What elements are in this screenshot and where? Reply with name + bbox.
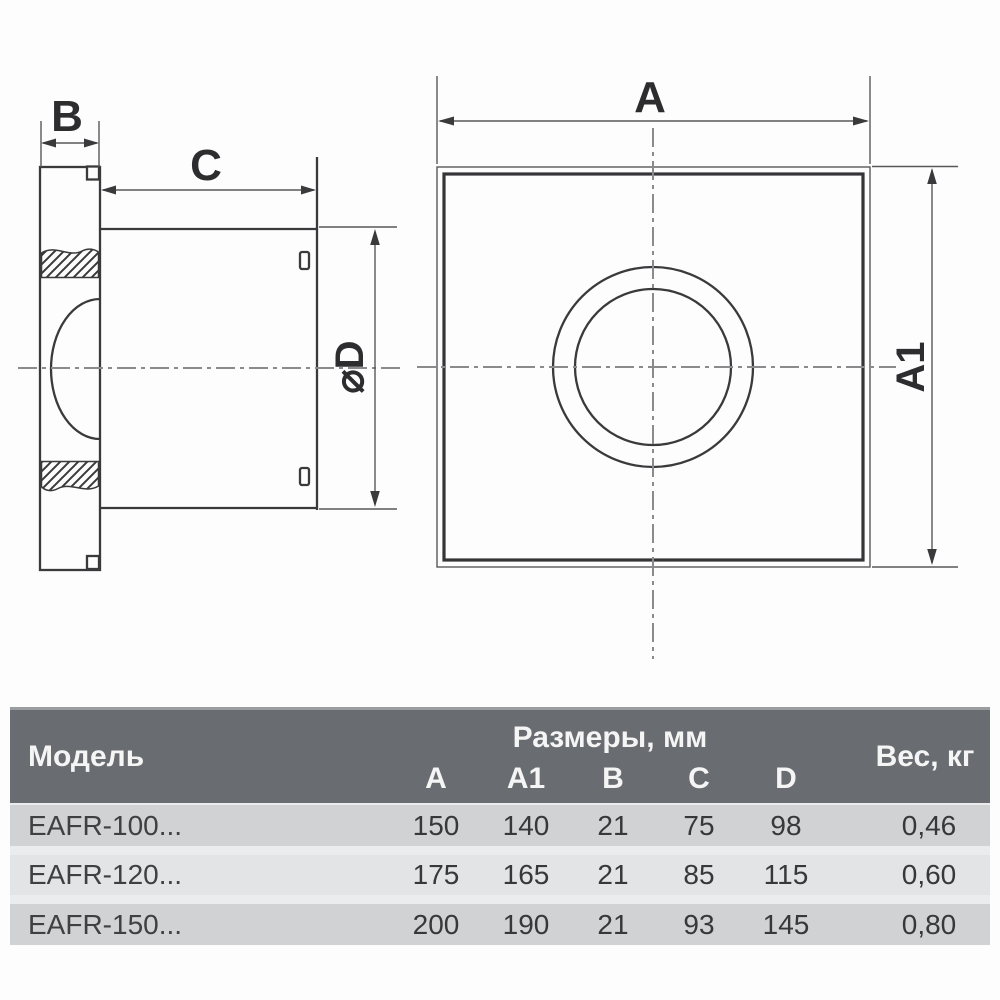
value-b-cell: 21	[570, 859, 656, 891]
dim-a-label: A	[634, 73, 666, 122]
hatch-section-bottom	[42, 462, 99, 491]
page: B C ⌀D	[0, 0, 1000, 1000]
weight-cell: 0,80	[830, 909, 990, 941]
table-row: EAFR-150... 200 190 21 93 145 0,80	[10, 904, 990, 945]
front-view: A A1	[417, 73, 958, 659]
value-b-cell: 21	[570, 909, 656, 941]
weight-cell: 0,46	[830, 810, 990, 842]
dim-d-label: ⌀D	[328, 341, 372, 394]
side-view: B C ⌀D	[18, 92, 400, 570]
model-column-header: Модель	[10, 740, 390, 774]
value-a-cell: 200	[390, 909, 482, 941]
value-a-cell: 175	[390, 859, 482, 891]
col-header-d: D	[742, 760, 830, 796]
model-cell: EAFR-150...	[10, 909, 390, 941]
tube-clip-top	[300, 252, 309, 269]
dim-d-arrow-bottom	[370, 491, 380, 507]
dim-c-label: C	[190, 141, 222, 190]
dim-a1-arrow-top	[927, 168, 937, 184]
dim-b-label: B	[51, 92, 83, 141]
weight-column-header: Вес, кг	[830, 740, 990, 774]
value-c-cell: 85	[656, 859, 742, 891]
value-c-cell: 93	[656, 909, 742, 941]
value-a1-cell: 165	[482, 859, 570, 891]
table-header: Модель Размеры, мм A A1 B C D Вес, кг	[10, 707, 990, 803]
col-header-a: A	[390, 760, 482, 796]
dim-b-arrow-right	[84, 139, 99, 148]
dim-a-arrow-right	[853, 117, 869, 126]
dim-c-arrow-right	[301, 186, 316, 195]
flange-notch-bottom	[87, 556, 99, 569]
tube-clip-bottom	[300, 468, 309, 485]
hatch-section-top	[42, 249, 99, 277]
dim-a-arrow-left	[438, 117, 454, 126]
col-header-c: C	[656, 760, 742, 796]
dim-c-arrow-left	[101, 186, 116, 195]
value-a1-cell: 140	[482, 810, 570, 842]
value-d-cell: 98	[742, 810, 830, 842]
dimensions-group-header: Размеры, мм	[390, 715, 830, 755]
weight-cell: 0,60	[830, 859, 990, 891]
col-header-b: B	[570, 760, 656, 796]
value-d-cell: 145	[742, 909, 830, 941]
value-b-cell: 21	[570, 810, 656, 842]
value-a1-cell: 190	[482, 909, 570, 941]
model-cell: EAFR-120...	[10, 859, 390, 891]
dim-a1-arrow-bottom	[927, 549, 937, 565]
dim-d-arrow-top	[370, 229, 380, 245]
value-c-cell: 75	[656, 810, 742, 842]
value-d-cell: 115	[742, 859, 830, 891]
spec-table: Модель Размеры, мм A A1 B C D Вес, кг EA…	[10, 707, 990, 945]
flange-notch-top	[87, 167, 99, 180]
model-cell: EAFR-100...	[10, 810, 390, 842]
dim-a1-label: A1	[889, 341, 933, 392]
table-row: EAFR-100... 150 140 21 75 98 0,46	[10, 805, 990, 846]
value-a-cell: 150	[390, 810, 482, 842]
col-header-a1: A1	[482, 760, 570, 796]
table-row: EAFR-120... 175 165 21 85 115 0,60	[10, 855, 990, 895]
technical-drawing: B C ⌀D	[0, 0, 1000, 700]
